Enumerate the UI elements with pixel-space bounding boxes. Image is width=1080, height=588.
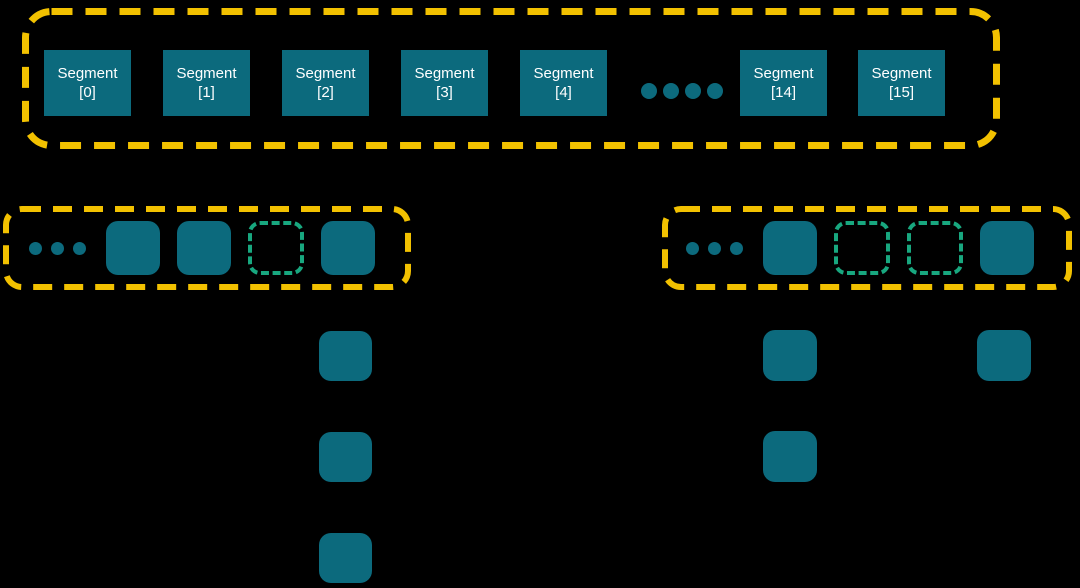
bucket-cell — [834, 221, 890, 275]
segment-box: Segment [0] — [44, 50, 131, 116]
bucket-array-right — [662, 206, 1072, 290]
entry-node — [319, 432, 372, 482]
segment-box: Segment [15] — [858, 50, 945, 116]
bucket-array-left — [3, 206, 411, 290]
ellipsis-dot-icon — [685, 83, 701, 99]
entry-node — [977, 330, 1031, 381]
segment-label: Segment — [753, 64, 813, 83]
segment-label: Segment — [533, 64, 593, 83]
segment-array-container: Segment [0] Segment [1] Segment [2] Segm… — [22, 8, 1000, 149]
segment-box: Segment [3] — [401, 50, 488, 116]
entry-chain-right-a — [763, 330, 817, 482]
segment-index: [1] — [198, 83, 215, 102]
segment-box: Segment [14] — [740, 50, 827, 116]
entry-node — [319, 331, 372, 381]
segment-map-diagram: Segment [0] Segment [1] Segment [2] Segm… — [0, 0, 1080, 588]
ellipsis-dot-icon — [663, 83, 679, 99]
entry-chain-left — [319, 331, 372, 583]
entry-chain-right-b — [977, 330, 1031, 381]
segment-list-right: Segment [14] Segment [15] — [740, 50, 945, 116]
entry-node — [763, 330, 817, 381]
segment-box: Segment [1] — [163, 50, 250, 116]
segment-index: [4] — [555, 83, 572, 102]
segment-index: [3] — [436, 83, 453, 102]
bucket-cell — [686, 242, 746, 255]
bucket-cell — [980, 221, 1034, 275]
segment-list-left: Segment [0] Segment [1] Segment [2] Segm… — [44, 50, 607, 116]
segments-ellipsis — [641, 83, 723, 99]
entry-node — [763, 431, 817, 482]
bucket-cell — [907, 221, 963, 275]
segment-label: Segment — [295, 64, 355, 83]
segment-index: [0] — [79, 83, 96, 102]
segment-box: Segment [2] — [282, 50, 369, 116]
segment-label: Segment — [414, 64, 474, 83]
segment-label: Segment — [57, 64, 117, 83]
segment-label: Segment — [871, 64, 931, 83]
segment-index: [2] — [317, 83, 334, 102]
bucket-cell — [321, 221, 375, 275]
bucket-cell — [106, 221, 160, 275]
bucket-cell — [763, 221, 817, 275]
bucket-cell — [177, 221, 231, 275]
entry-node — [319, 533, 372, 583]
bucket-cells-right — [662, 206, 1072, 290]
ellipsis-dot-icon — [707, 83, 723, 99]
segment-index: [15] — [889, 83, 914, 102]
segment-label: Segment — [176, 64, 236, 83]
bucket-cell — [248, 221, 304, 275]
ellipsis-dot-icon — [641, 83, 657, 99]
segment-box: Segment [4] — [520, 50, 607, 116]
segment-index: [14] — [771, 83, 796, 102]
bucket-cell — [29, 242, 89, 255]
bucket-cells-left — [3, 206, 411, 290]
